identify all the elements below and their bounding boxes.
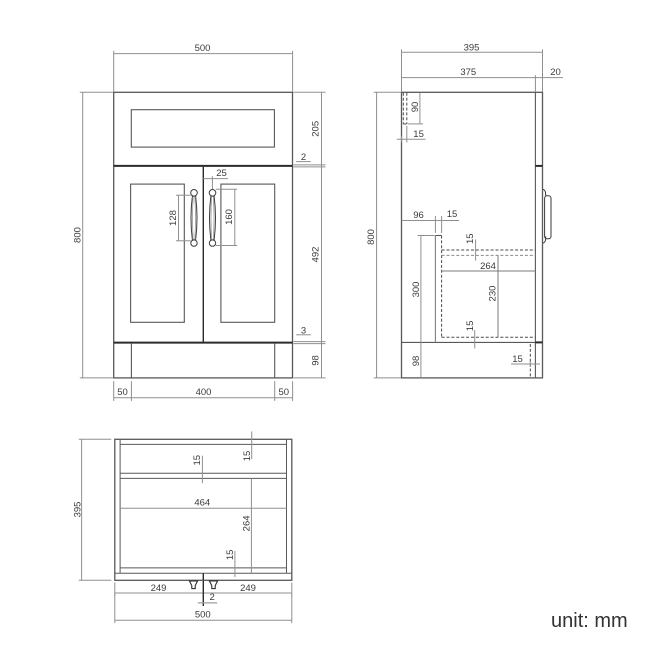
svg-text:15: 15 <box>447 209 458 220</box>
svg-text:50: 50 <box>117 387 128 398</box>
svg-text:264: 264 <box>242 515 253 531</box>
svg-text:50: 50 <box>279 387 290 398</box>
svg-text:98: 98 <box>411 356 422 367</box>
svg-text:492: 492 <box>311 247 322 263</box>
svg-text:15: 15 <box>465 321 476 332</box>
svg-text:unit: mm: unit: mm <box>551 610 628 632</box>
svg-text:160: 160 <box>224 209 235 225</box>
svg-text:264: 264 <box>480 261 496 272</box>
svg-text:98: 98 <box>311 355 322 366</box>
svg-text:249: 249 <box>151 583 167 594</box>
svg-text:464: 464 <box>194 498 210 509</box>
svg-text:230: 230 <box>488 286 499 302</box>
svg-text:375: 375 <box>460 67 476 78</box>
svg-text:15: 15 <box>192 455 203 466</box>
svg-text:395: 395 <box>73 502 84 518</box>
svg-text:800: 800 <box>73 227 84 243</box>
svg-text:90: 90 <box>410 102 421 113</box>
svg-text:3: 3 <box>301 325 306 336</box>
svg-text:20: 20 <box>550 67 561 78</box>
svg-text:15: 15 <box>465 233 476 244</box>
svg-text:300: 300 <box>411 282 422 298</box>
svg-text:25: 25 <box>216 168 227 179</box>
svg-text:2: 2 <box>210 592 215 603</box>
svg-text:15: 15 <box>413 129 424 140</box>
svg-text:15: 15 <box>512 354 523 365</box>
svg-text:96: 96 <box>413 210 424 221</box>
svg-text:205: 205 <box>311 121 322 137</box>
svg-text:395: 395 <box>464 42 480 53</box>
svg-text:500: 500 <box>195 609 211 620</box>
svg-text:800: 800 <box>366 229 377 245</box>
svg-text:15: 15 <box>242 451 253 462</box>
svg-text:15: 15 <box>225 550 236 561</box>
svg-text:249: 249 <box>240 583 256 594</box>
svg-text:128: 128 <box>168 210 179 226</box>
svg-text:2: 2 <box>301 152 306 163</box>
svg-text:400: 400 <box>196 387 212 398</box>
svg-text:500: 500 <box>195 43 211 54</box>
